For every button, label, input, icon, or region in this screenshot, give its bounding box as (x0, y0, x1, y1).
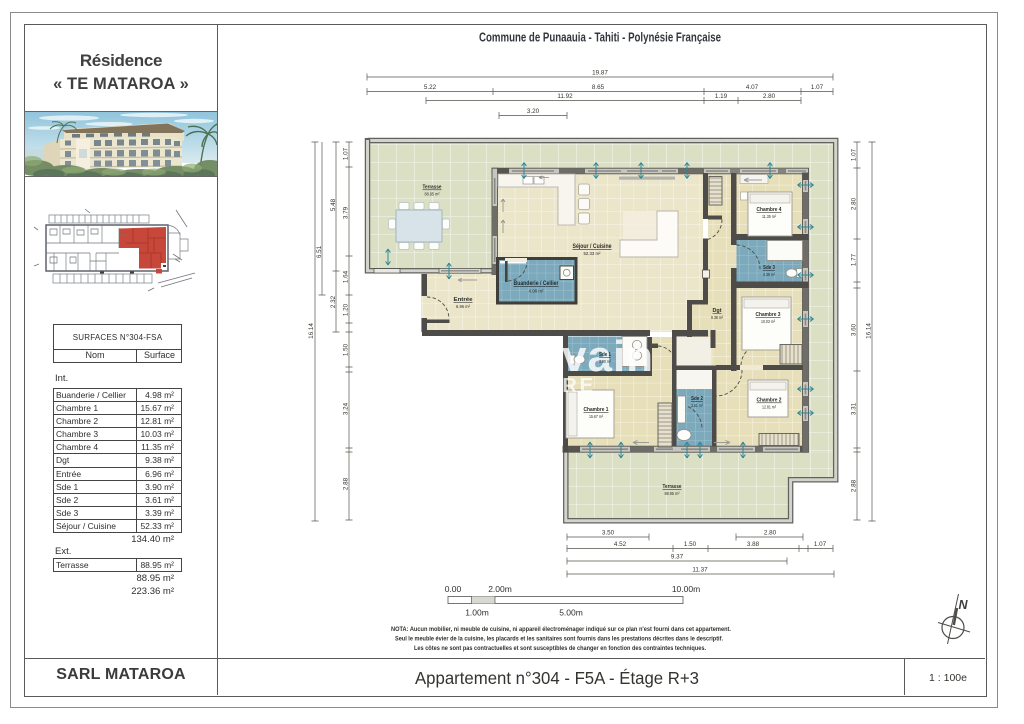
svg-text:Buanderie / Cellier: Buanderie / Cellier (514, 281, 560, 287)
svg-text:Sde 3: Sde 3 (763, 265, 775, 271)
svg-text:Sde 1: Sde 1 (599, 352, 611, 358)
svg-text:Commune de Punaauia - Tahiti -: Commune de Punaauia - Tahiti - Polynésie… (479, 31, 721, 45)
svg-text:1.07: 1.07 (811, 84, 824, 91)
svg-text:15.67 m²: 15.67 m² (589, 414, 603, 419)
svg-text:2.00m: 2.00m (488, 584, 512, 594)
svg-text:N: N (958, 598, 968, 612)
svg-text:Sde 2: Sde 2 (691, 396, 703, 402)
svg-text:1.64: 1.64 (343, 270, 350, 283)
svg-text:2.80: 2.80 (851, 197, 858, 210)
svg-text:19.87: 19.87 (592, 70, 608, 77)
svg-text:Les côtes ne sont pas contract: Les côtes ne sont pas contractuelles et … (414, 645, 706, 652)
svg-text:11.35 m²: 11.35 m² (762, 214, 776, 219)
svg-text:3.61 m²: 3.61 m² (691, 403, 703, 408)
svg-text:1.07: 1.07 (343, 147, 350, 160)
svg-text:Dgt: Dgt (713, 308, 722, 314)
svg-text:ERE: ERE (546, 375, 596, 397)
svg-text:3.79: 3.79 (343, 206, 350, 219)
svg-text:1 : 100e: 1 : 100e (929, 672, 967, 684)
svg-text:5.00m: 5.00m (559, 608, 583, 618)
svg-text:11.92: 11.92 (557, 93, 573, 100)
svg-text:3.60: 3.60 (851, 323, 858, 336)
svg-text:Chambre 1: Chambre 1 (584, 407, 610, 413)
svg-text:NOTA: Aucun mobilier, ni meubl: NOTA: Aucun mobilier, ni meuble de cuisi… (391, 626, 731, 633)
svg-text:1.77: 1.77 (851, 253, 858, 266)
svg-text:3.20: 3.20 (527, 108, 540, 115)
svg-text:11.37: 11.37 (692, 567, 708, 574)
svg-text:88.95 m²: 88.95 m² (425, 192, 440, 197)
svg-text:Entrée: Entrée (454, 297, 474, 303)
svg-text:0.00: 0.00 (445, 584, 462, 594)
svg-text:2.32: 2.32 (330, 295, 337, 308)
svg-text:1.50: 1.50 (343, 343, 350, 356)
svg-text:10.03 m²: 10.03 m² (761, 319, 775, 324)
svg-text:6.96 m²: 6.96 m² (456, 304, 470, 309)
svg-text:Terrasse: Terrasse (423, 185, 443, 191)
svg-text:8.65: 8.65 (592, 84, 605, 91)
svg-text:Chambre 3: Chambre 3 (756, 312, 782, 318)
svg-text:Chambre 4: Chambre 4 (757, 207, 783, 213)
svg-text:4.07: 4.07 (746, 84, 759, 91)
svg-text:16.14: 16.14 (308, 323, 315, 339)
svg-text:3.90 m²: 3.90 m² (599, 359, 611, 364)
svg-text:4.98 m²: 4.98 m² (529, 289, 544, 294)
svg-text:Appartement n°304 - F5A - Étag: Appartement n°304 - F5A - Étage R+3 (415, 668, 699, 688)
svg-text:1.00m: 1.00m (465, 608, 489, 618)
svg-text:88.95 m²: 88.95 m² (665, 491, 680, 496)
svg-text:Chambre 2: Chambre 2 (757, 398, 782, 404)
svg-text:16.14: 16.14 (866, 323, 873, 339)
svg-text:2.88: 2.88 (343, 477, 350, 490)
svg-text:1.19: 1.19 (715, 93, 728, 100)
svg-text:Seul le meuble évier de la cui: Seul le meuble évier de la cuisine, les … (395, 636, 723, 643)
svg-text:6.51: 6.51 (316, 245, 323, 258)
svg-text:3.24: 3.24 (343, 402, 350, 415)
svg-text:5.48: 5.48 (330, 198, 337, 211)
svg-text:9.37: 9.37 (671, 554, 684, 561)
svg-text:2.80: 2.80 (764, 530, 777, 537)
svg-text:10.00m: 10.00m (672, 584, 700, 594)
svg-text:9.38 m²: 9.38 m² (711, 315, 723, 320)
svg-text:3.31: 3.31 (851, 402, 858, 415)
svg-text:12.81 m²: 12.81 m² (762, 405, 776, 410)
svg-text:3.88: 3.88 (747, 541, 760, 548)
svg-text:2.80: 2.80 (763, 93, 776, 100)
svg-text:4.52: 4.52 (614, 541, 627, 548)
svg-text:5.22: 5.22 (424, 84, 437, 91)
svg-text:2.88: 2.88 (851, 479, 858, 492)
svg-text:52.33 m²: 52.33 m² (584, 251, 601, 256)
svg-text:1.20: 1.20 (343, 303, 350, 316)
svg-text:Terrasse: Terrasse (663, 484, 683, 490)
svg-text:1.50: 1.50 (684, 541, 697, 548)
svg-text:3.50: 3.50 (602, 530, 615, 537)
svg-text:1.07: 1.07 (814, 541, 827, 548)
svg-text:Séjour / Cuisine: Séjour / Cuisine (573, 243, 612, 250)
svg-text:3.39 m²: 3.39 m² (763, 272, 775, 277)
svg-text:1.07: 1.07 (851, 148, 858, 161)
